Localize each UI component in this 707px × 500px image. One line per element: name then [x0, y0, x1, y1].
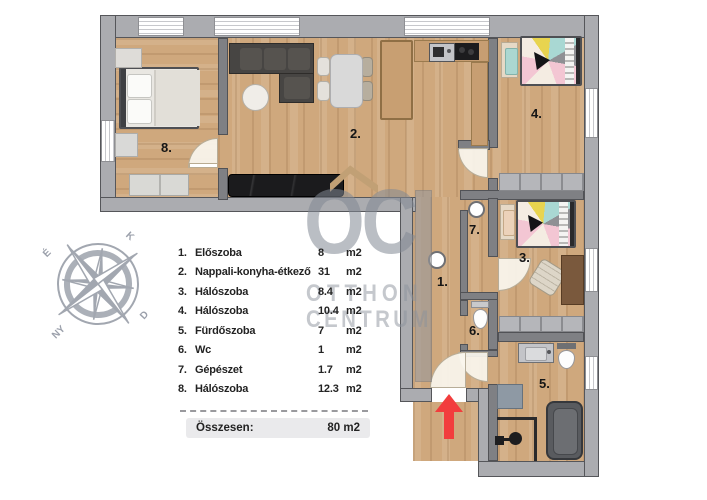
window-top-2: [214, 17, 300, 36]
kitchen-counter-icon: [414, 40, 489, 62]
sofa-chaise-icon: [279, 73, 314, 103]
dining-chair-icon: [317, 81, 330, 101]
legend-item-number: 6.: [178, 344, 195, 356]
entrance-arrow-head: [435, 394, 463, 412]
wall-room8-room2-lower: [218, 168, 228, 200]
legend-item-unit: m2: [346, 266, 370, 278]
bench-black-icon: [228, 174, 344, 197]
burner-icon: [459, 47, 465, 53]
bathtub-inner: [553, 408, 578, 455]
legend-item-number: 2.: [178, 266, 195, 278]
legend-item-label: Előszoba: [195, 247, 318, 259]
legend-item-unit: m2: [346, 364, 370, 376]
legend-item-number: 7.: [178, 364, 195, 376]
bathtub-icon: [546, 401, 583, 460]
legend-item-unit: m2: [346, 305, 370, 317]
window-left-bedroom8: [101, 120, 115, 162]
compass-rose: É K D NY: [36, 222, 160, 346]
legend-item-unit: m2: [346, 383, 370, 395]
sink-icon: [429, 43, 455, 62]
legend-item-number: 5.: [178, 325, 195, 337]
legend-item-label: Wc: [195, 344, 318, 356]
legend-item-number: 4.: [178, 305, 195, 317]
hallway-rug-icon: [415, 190, 432, 382]
wall-hall-room3-b: [488, 292, 498, 350]
legend-item-value: 10.4: [318, 305, 346, 317]
legend-item-label: Gépészet: [195, 364, 318, 376]
entrance-arrow-shaft: [444, 412, 454, 439]
legend-item-number: 8.: [178, 383, 195, 395]
pillow-icon: [505, 48, 518, 75]
blanket-triangle: [528, 215, 543, 232]
wall-hall-room3-a: [488, 198, 498, 257]
room-label-5: 5.: [539, 376, 550, 391]
window-top-1: [138, 17, 184, 36]
legend-item-label: Nappali-konyha-étkező: [195, 266, 318, 278]
bathroom-sink-icon: [518, 343, 554, 363]
wall-left: [100, 15, 116, 212]
pillow-icon: [127, 74, 152, 98]
nightstand-room3-icon: [500, 204, 515, 240]
legend-item-unit: m2: [346, 325, 370, 337]
shower-wall-line: [534, 417, 537, 461]
wall-bottom-upper-section: [100, 197, 416, 212]
sofa-cushion: [240, 48, 262, 70]
legend-item-unit: m2: [346, 247, 370, 259]
legend-total-value: 80 m2: [327, 422, 360, 434]
wall-room3-room5: [498, 332, 584, 342]
radiator-room8-icon: [115, 133, 138, 157]
bed-room4-icon: [520, 36, 582, 86]
sofa-cushion: [264, 48, 286, 70]
wall-left-lower-section: [400, 197, 413, 402]
sheet-strip: [559, 202, 568, 246]
legend-row: 2. Nappali-konyha-étkező 31 m2: [178, 263, 370, 283]
wardrobe-room3-icon: [499, 316, 584, 332]
toilet-tank: [471, 301, 489, 308]
legend-total: Összesen: 80 m2: [186, 418, 370, 438]
legend-separator: [180, 410, 368, 412]
dining-table-icon: [330, 54, 363, 108]
legend-item-number: 1.: [178, 247, 195, 259]
room-legend: 1. Előszoba 8 m2 2. Nappali-konyha-étkez…: [178, 243, 370, 438]
faucet-icon: [547, 350, 551, 354]
faucet-icon: [447, 49, 451, 53]
boiler-icon: [468, 201, 485, 218]
shower-bar: [502, 438, 514, 441]
burner-icon: [468, 49, 474, 55]
sofa-cushion: [288, 48, 310, 70]
window-top-3: [404, 17, 490, 36]
legend-item-label: Hálószoba: [195, 286, 318, 298]
toilet-tank: [557, 343, 576, 349]
sofa-icon: [229, 43, 314, 74]
kitchen-cabinet-icon: [471, 62, 488, 146]
legend-row: 8. Hálószoba 12.3 m2: [178, 380, 370, 400]
wall-room7-left: [460, 210, 468, 293]
washing-machine-icon: [497, 384, 523, 409]
window-right-bathroom: [585, 356, 598, 390]
bed-room3-icon: [516, 200, 576, 248]
door-leaf-room8: [189, 163, 218, 168]
window-right-bedroom4: [585, 88, 598, 138]
blanket-triangle: [534, 52, 550, 70]
kitchen-island-icon: [380, 40, 413, 120]
legend-item-label: Fürdőszoba: [195, 325, 318, 337]
headboard-icon: [570, 202, 574, 246]
room-label-1: 1.: [437, 274, 448, 289]
pillow-icon: [503, 210, 515, 236]
wall-kitchen-room4-upper: [488, 38, 498, 148]
legend-item-label: Hálószoba: [195, 305, 318, 317]
wall-room8-room2-upper: [218, 38, 228, 135]
legend-row: 1. Előszoba 8 m2: [178, 243, 370, 263]
stove-icon: [455, 43, 479, 60]
duvet-icon: [154, 70, 200, 126]
room-label-3: 3.: [519, 250, 530, 265]
legend-item-unit: m2: [346, 286, 370, 298]
wall-hall-bottom-left: [400, 388, 432, 402]
legend-row: 5. Fürdőszoba 7 m2: [178, 321, 370, 341]
wall-room4-room3: [460, 190, 584, 200]
legend-total-label: Összesen:: [196, 422, 254, 434]
wall-wc-top: [460, 292, 498, 300]
legend-item-value: 31: [318, 266, 346, 278]
legend-item-value: 7: [318, 325, 346, 337]
legend-item-value: 1.7: [318, 364, 346, 376]
legend-row: 6. Wc 1 m2: [178, 341, 370, 361]
wall-bottom-right-section: [478, 461, 599, 477]
legend-row: 3. Hálószoba 8.4 m2: [178, 282, 370, 302]
legend-row: 7. Gépészet 1.7 m2: [178, 360, 370, 380]
room-label-8: 8.: [161, 140, 172, 155]
legend-row: 4. Hálószoba 10.4 m2: [178, 302, 370, 322]
shower-wall-line: [497, 417, 537, 420]
dining-chair-icon: [317, 57, 330, 76]
coffee-table-icon: [242, 84, 269, 111]
floorplan-page: 1. 2. 3. 4. 5. 6. 7. 8. OC OTTHON CENTRU…: [0, 0, 707, 500]
legend-item-value: 1: [318, 344, 346, 356]
desk-icon: [561, 255, 584, 305]
legend-item-number: 3.: [178, 286, 195, 298]
legend-item-unit: m2: [346, 344, 370, 356]
bed-room8-icon: [119, 67, 199, 129]
sheet-strip: [565, 38, 574, 84]
room-label-6: 6.: [469, 323, 480, 338]
headboard-icon: [576, 38, 580, 84]
sink-basin: [525, 347, 547, 361]
legend-item-label: Hálószoba: [195, 383, 318, 395]
window-right-bedroom3: [585, 248, 598, 292]
wall-right: [584, 15, 599, 477]
dresser-room8-icon: [115, 48, 142, 68]
headboard-icon: [121, 69, 126, 127]
legend-item-value: 8.4: [318, 286, 346, 298]
room-label-2: 2.: [350, 126, 361, 141]
wardrobe-room4-icon: [499, 173, 584, 191]
nightstand-room4-icon: [501, 42, 518, 78]
wall-wc-left-a: [460, 300, 468, 316]
pillow-icon: [127, 99, 152, 124]
legend-item-value: 8: [318, 247, 346, 259]
wardrobe-room8-icon: [129, 174, 189, 196]
room-label-7: 7.: [469, 222, 480, 237]
legend-item-value: 12.3: [318, 383, 346, 395]
sofa-cushion: [284, 77, 310, 99]
entrance-arrow: [435, 394, 463, 440]
room-label-4: 4.: [531, 106, 542, 121]
sink-basin: [433, 47, 444, 57]
